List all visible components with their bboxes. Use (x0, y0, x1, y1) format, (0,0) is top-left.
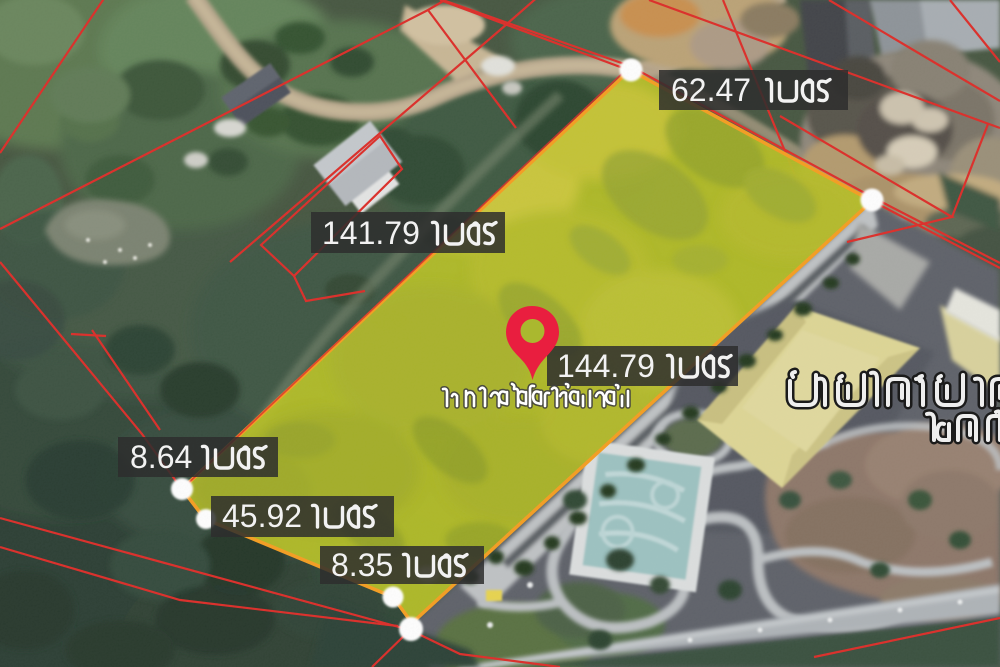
svg-text:144.79: 144.79 (557, 348, 655, 384)
svg-text:45.92: 45.92 (222, 498, 302, 534)
svg-text:62.47: 62.47 (671, 72, 751, 108)
svg-text:8.35: 8.35 (331, 547, 393, 583)
svg-text:141.79: 141.79 (322, 215, 420, 251)
svg-text:8.64: 8.64 (130, 439, 192, 475)
